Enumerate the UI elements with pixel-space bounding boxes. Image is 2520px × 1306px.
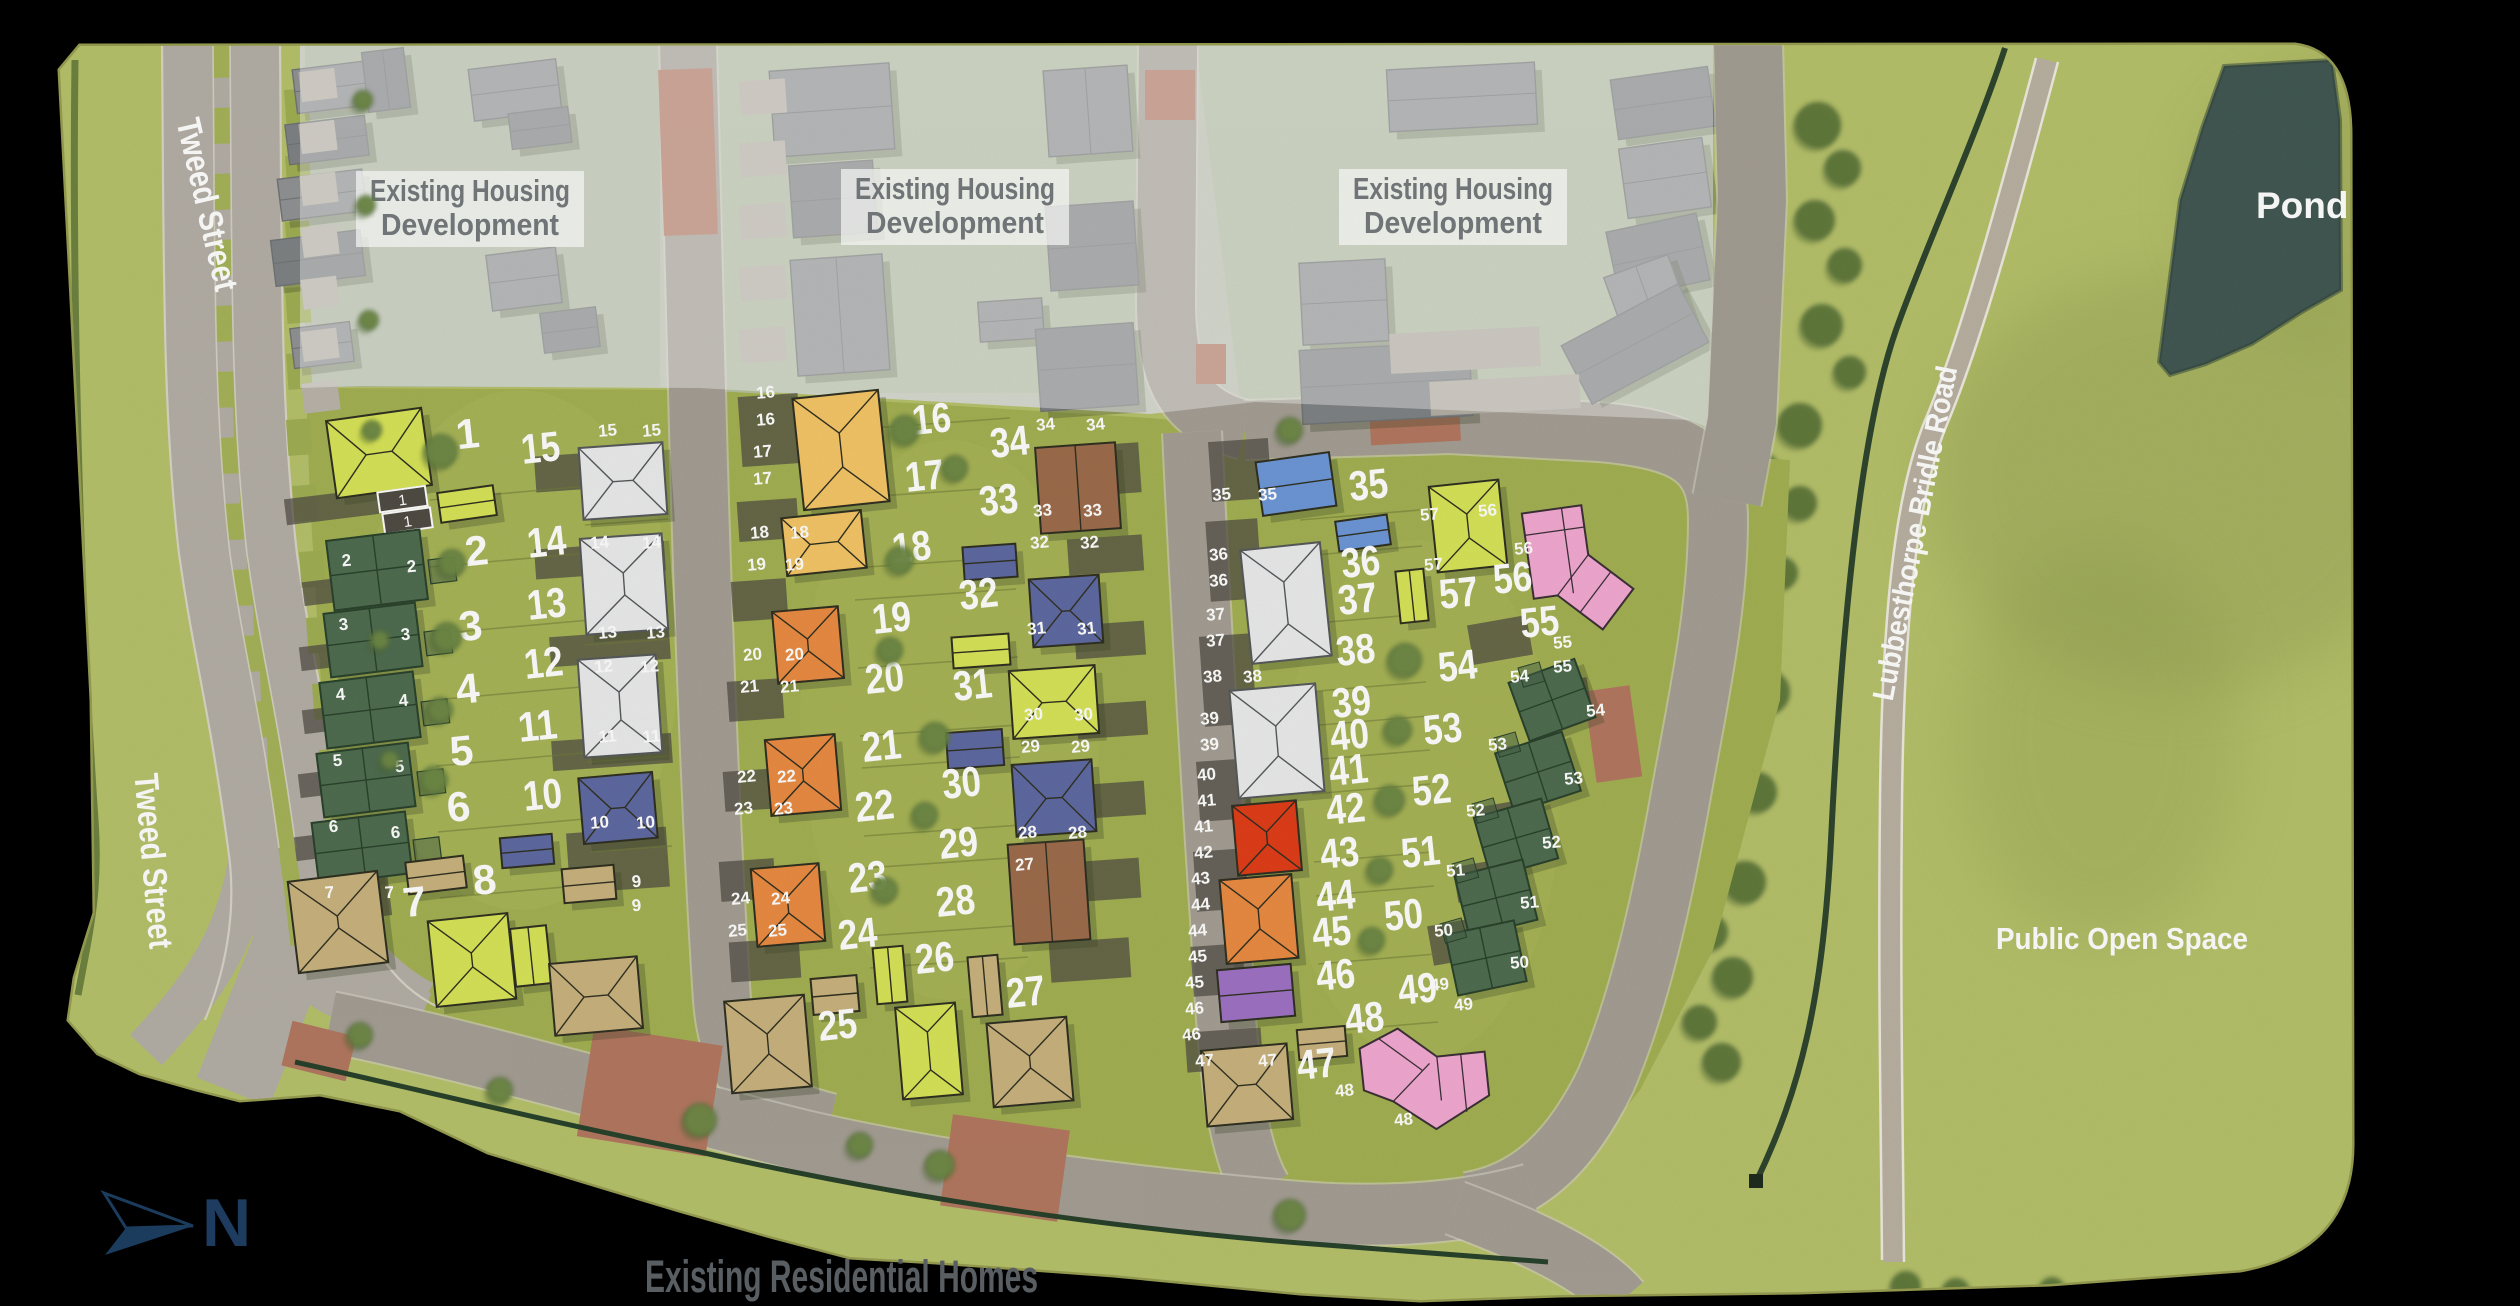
svg-text:Existing Residential Homes: Existing Residential Homes (645, 1251, 1038, 1302)
svg-text:N: N (202, 1185, 251, 1261)
